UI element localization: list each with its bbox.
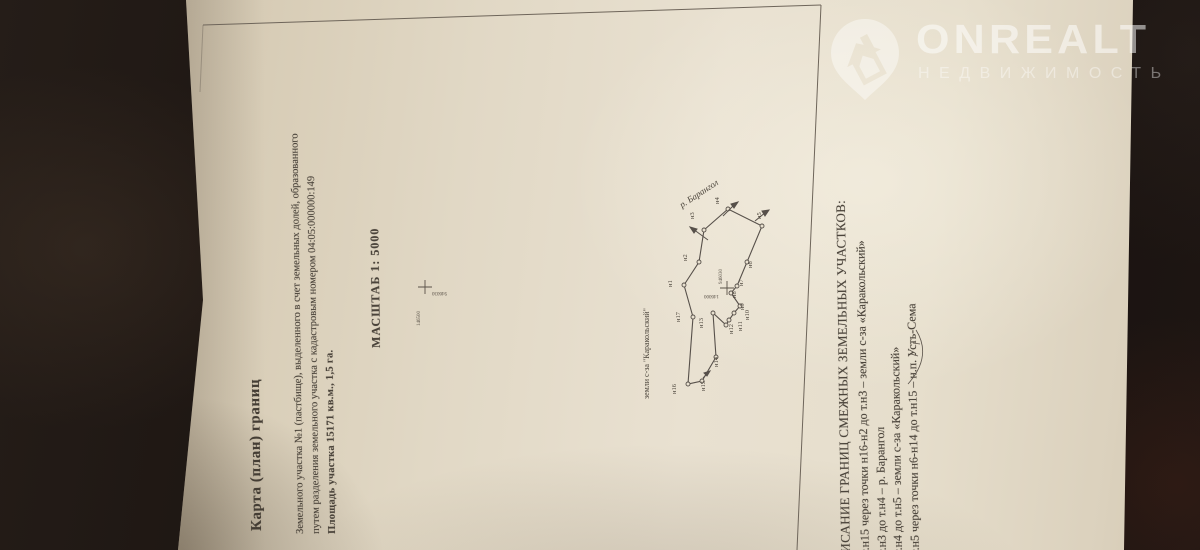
point-label: н15: [700, 381, 707, 391]
grid-label: 146500: [417, 311, 422, 327]
point-label: н13: [698, 318, 705, 328]
point-label: н10: [744, 310, 751, 320]
signature-squiggle: [908, 330, 923, 384]
grid-label: 946030: [432, 290, 448, 295]
point-label: н17: [675, 311, 682, 322]
onrealt-watermark: ONREALT НЕДВИЖИМОСТЬ: [826, 16, 1171, 102]
point-label: н14: [713, 356, 720, 367]
point-label: н1: [667, 280, 674, 287]
point-label: н2: [682, 254, 689, 261]
photo-of-document: Карта (план) границ Земельного участка №…: [0, 0, 1200, 550]
grid-label: 146000: [704, 293, 720, 298]
grid-label: 946030: [719, 269, 724, 285]
map-frame: [200, 5, 821, 550]
adjacent-land-label: земли с-за "Каракольский": [642, 308, 651, 399]
house-pin-icon: [826, 16, 904, 102]
point-label: н4: [714, 197, 721, 204]
point-label: н5: [756, 212, 763, 219]
boundary-points: [682, 207, 764, 386]
point-label: н3: [689, 212, 696, 219]
point-label: н6: [747, 261, 754, 268]
point-label: н16: [671, 383, 678, 394]
point-label: н12: [728, 324, 735, 334]
river-arrow-icon: [690, 202, 769, 378]
river-label: р. Барангол: [677, 177, 720, 210]
watermark-subtitle: НЕДВИЖИМОСТЬ: [918, 65, 1171, 83]
point-label: н7: [738, 279, 745, 286]
point-label: н11: [737, 321, 744, 331]
parcel-boundary: [684, 209, 762, 384]
watermark-brand: ONREALT: [916, 16, 1183, 62]
point-label: н9: [739, 303, 746, 310]
point-label: н8: [731, 291, 738, 298]
